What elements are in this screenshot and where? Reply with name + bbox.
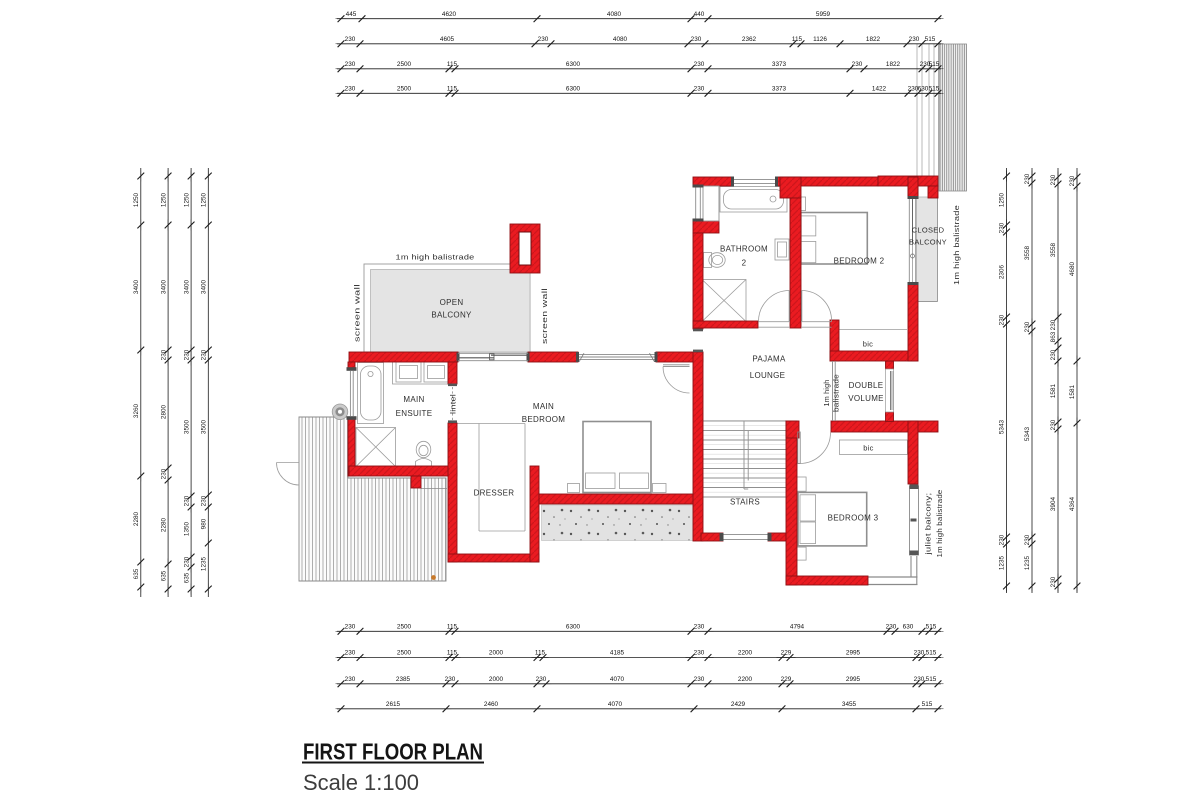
svg-text:230: 230 bbox=[183, 349, 190, 360]
svg-text:DRESSER: DRESSER bbox=[474, 489, 515, 498]
svg-text:DOUBLE: DOUBLE bbox=[849, 381, 884, 390]
svg-text:1m high balistrade: 1m high balistrade bbox=[396, 253, 475, 262]
svg-text:115: 115 bbox=[535, 650, 546, 657]
svg-text:230: 230 bbox=[1024, 321, 1031, 332]
svg-text:juliet balcony;: juliet balcony; bbox=[926, 493, 933, 556]
svg-text:230: 230 bbox=[694, 624, 705, 631]
svg-text:1235: 1235 bbox=[1024, 555, 1031, 570]
svg-text:BEDROOM 2: BEDROOM 2 bbox=[834, 257, 885, 266]
svg-text:2500: 2500 bbox=[397, 650, 412, 657]
svg-text:balistrade: balistrade bbox=[834, 374, 841, 412]
svg-text:230: 230 bbox=[345, 36, 356, 43]
svg-text:3400: 3400 bbox=[201, 279, 208, 294]
svg-text:1235: 1235 bbox=[999, 555, 1006, 570]
svg-text:230: 230 bbox=[183, 556, 190, 567]
svg-text:230: 230 bbox=[201, 495, 208, 506]
svg-text:863: 863 bbox=[1050, 331, 1057, 342]
svg-text:3400: 3400 bbox=[133, 279, 140, 294]
svg-text:2: 2 bbox=[742, 259, 747, 268]
svg-text:ENSUITE: ENSUITE bbox=[396, 409, 433, 418]
svg-text:630: 630 bbox=[903, 624, 914, 631]
svg-text:2460: 2460 bbox=[484, 701, 499, 708]
svg-text:5959: 5959 bbox=[816, 11, 831, 18]
svg-text:230: 230 bbox=[999, 314, 1006, 325]
svg-text:6300: 6300 bbox=[566, 61, 581, 68]
svg-text:230: 230 bbox=[1050, 319, 1057, 330]
svg-text:PAJAMA: PAJAMA bbox=[752, 355, 786, 364]
svg-text:4364: 4364 bbox=[1069, 496, 1076, 511]
svg-text:2429: 2429 bbox=[731, 701, 746, 708]
svg-text:229: 229 bbox=[781, 650, 792, 657]
svg-text:230: 230 bbox=[538, 36, 549, 43]
svg-text:630: 630 bbox=[918, 86, 929, 93]
svg-text:4605: 4605 bbox=[440, 36, 455, 43]
svg-text:3904: 3904 bbox=[1050, 496, 1057, 511]
svg-text:1822: 1822 bbox=[866, 36, 881, 43]
svg-text:LOUNGE: LOUNGE bbox=[750, 371, 786, 380]
svg-text:230: 230 bbox=[160, 468, 167, 479]
svg-text:3260: 3260 bbox=[133, 403, 140, 418]
svg-text:230: 230 bbox=[1050, 349, 1057, 360]
svg-text:1250: 1250 bbox=[183, 192, 190, 207]
svg-text:230: 230 bbox=[1050, 419, 1057, 430]
svg-text:3400: 3400 bbox=[183, 279, 190, 294]
svg-text:2500: 2500 bbox=[397, 624, 412, 631]
svg-text:VOLUME: VOLUME bbox=[848, 394, 884, 403]
svg-text:screen wall: screen wall bbox=[355, 284, 362, 342]
svg-text:230: 230 bbox=[914, 676, 925, 683]
svg-text:3558: 3558 bbox=[1024, 245, 1031, 260]
svg-text:2280: 2280 bbox=[133, 511, 140, 526]
svg-text:230: 230 bbox=[183, 495, 190, 506]
svg-text:230: 230 bbox=[345, 61, 356, 68]
svg-text:Scale 1:100: Scale 1:100 bbox=[303, 770, 419, 795]
svg-text:1422: 1422 bbox=[872, 86, 887, 93]
svg-text:1m high: 1m high bbox=[824, 380, 831, 407]
svg-text:2000: 2000 bbox=[489, 650, 504, 657]
svg-text:230: 230 bbox=[345, 676, 356, 683]
svg-text:230: 230 bbox=[201, 349, 208, 360]
svg-text:4070: 4070 bbox=[608, 701, 623, 708]
svg-text:1126: 1126 bbox=[813, 36, 827, 43]
svg-text:230: 230 bbox=[160, 349, 167, 360]
svg-text:3400: 3400 bbox=[160, 279, 167, 294]
svg-text:515: 515 bbox=[929, 61, 940, 68]
svg-text:3373: 3373 bbox=[772, 61, 787, 68]
svg-text:115: 115 bbox=[447, 61, 458, 68]
svg-text:1250: 1250 bbox=[133, 192, 140, 207]
svg-text:980: 980 bbox=[201, 518, 208, 529]
svg-text:4185: 4185 bbox=[610, 650, 625, 657]
svg-text:4080: 4080 bbox=[613, 36, 628, 43]
svg-text:bic: bic bbox=[863, 340, 874, 349]
svg-text:2200: 2200 bbox=[738, 650, 753, 657]
svg-text:FIRST FLOOR PLAN: FIRST FLOOR PLAN bbox=[303, 739, 483, 765]
svg-text:230: 230 bbox=[1024, 173, 1031, 184]
svg-text:4080: 4080 bbox=[607, 11, 622, 18]
svg-text:2280: 2280 bbox=[160, 517, 167, 532]
svg-text:115: 115 bbox=[447, 624, 458, 631]
svg-text:230: 230 bbox=[1050, 576, 1057, 587]
svg-text:230: 230 bbox=[999, 534, 1006, 545]
svg-text:515: 515 bbox=[926, 624, 937, 631]
svg-text:635: 635 bbox=[183, 572, 190, 583]
svg-text:2800: 2800 bbox=[160, 404, 167, 419]
svg-text:3500: 3500 bbox=[201, 419, 208, 434]
svg-text:2995: 2995 bbox=[846, 650, 861, 657]
svg-text:1250: 1250 bbox=[201, 192, 208, 207]
svg-text:1m high balistrade: 1m high balistrade bbox=[954, 205, 961, 285]
svg-text:1822: 1822 bbox=[886, 61, 901, 68]
svg-text:230: 230 bbox=[694, 650, 705, 657]
svg-text:2000: 2000 bbox=[489, 676, 504, 683]
svg-text:115: 115 bbox=[447, 650, 458, 657]
svg-text:1235: 1235 bbox=[201, 556, 208, 571]
svg-text:screen wall: screen wall bbox=[542, 288, 549, 344]
svg-text:2200: 2200 bbox=[738, 676, 753, 683]
svg-text:230: 230 bbox=[999, 222, 1006, 233]
svg-text:MAIN: MAIN bbox=[533, 402, 554, 411]
svg-text:CLOSED: CLOSED bbox=[912, 226, 945, 235]
svg-text:230: 230 bbox=[914, 650, 925, 657]
svg-text:5343: 5343 bbox=[1024, 426, 1031, 441]
svg-text:bic: bic bbox=[863, 444, 874, 453]
svg-text:230: 230 bbox=[345, 650, 356, 657]
svg-text:230: 230 bbox=[345, 86, 356, 93]
svg-text:515: 515 bbox=[926, 676, 937, 683]
svg-text:3558: 3558 bbox=[1050, 242, 1057, 257]
svg-text:2500: 2500 bbox=[397, 61, 412, 68]
svg-text:4070: 4070 bbox=[610, 676, 625, 683]
svg-text:230: 230 bbox=[909, 36, 920, 43]
svg-text:230: 230 bbox=[1069, 175, 1076, 186]
svg-text:BALCONY: BALCONY bbox=[909, 238, 947, 247]
svg-text:1581: 1581 bbox=[1069, 384, 1076, 399]
svg-text:1581: 1581 bbox=[1050, 383, 1057, 398]
svg-text:115: 115 bbox=[792, 36, 803, 43]
svg-text:lintel: lintel bbox=[451, 394, 458, 414]
svg-text:3455: 3455 bbox=[842, 701, 857, 708]
svg-text:115: 115 bbox=[447, 86, 458, 93]
svg-text:230: 230 bbox=[694, 676, 705, 683]
svg-text:229: 229 bbox=[781, 676, 792, 683]
svg-text:6300: 6300 bbox=[566, 86, 581, 93]
svg-text:1m high balistrade: 1m high balistrade bbox=[937, 490, 944, 558]
svg-text:2500: 2500 bbox=[397, 86, 412, 93]
svg-text:BALCONY: BALCONY bbox=[431, 311, 472, 320]
svg-text:5343: 5343 bbox=[999, 419, 1006, 434]
svg-text:2995: 2995 bbox=[846, 676, 861, 683]
svg-text:230: 230 bbox=[345, 624, 356, 631]
svg-text:2385: 2385 bbox=[396, 676, 411, 683]
svg-text:STAIRS: STAIRS bbox=[730, 498, 760, 507]
svg-text:635: 635 bbox=[160, 570, 167, 581]
svg-text:515: 515 bbox=[926, 650, 937, 657]
svg-text:4794: 4794 bbox=[790, 624, 805, 631]
svg-text:515: 515 bbox=[925, 36, 936, 43]
svg-text:230: 230 bbox=[1024, 534, 1031, 545]
svg-text:BEDROOM: BEDROOM bbox=[522, 415, 565, 424]
svg-text:BATHROOM: BATHROOM bbox=[720, 245, 768, 254]
svg-text:BEDROOM 3: BEDROOM 3 bbox=[828, 514, 879, 523]
svg-text:230: 230 bbox=[691, 36, 702, 43]
svg-text:230: 230 bbox=[852, 61, 863, 68]
svg-text:230: 230 bbox=[536, 676, 547, 683]
svg-text:3373: 3373 bbox=[772, 86, 787, 93]
svg-text:2615: 2615 bbox=[386, 701, 401, 708]
svg-text:3500: 3500 bbox=[183, 419, 190, 434]
svg-text:1250: 1250 bbox=[160, 192, 167, 207]
svg-text:515: 515 bbox=[922, 701, 933, 708]
svg-text:635: 635 bbox=[133, 568, 140, 579]
svg-text:4620: 4620 bbox=[442, 11, 457, 18]
svg-text:230: 230 bbox=[694, 61, 705, 68]
svg-text:MAIN: MAIN bbox=[403, 395, 424, 404]
svg-text:1250: 1250 bbox=[999, 192, 1006, 207]
svg-text:515: 515 bbox=[929, 86, 940, 93]
svg-text:2362: 2362 bbox=[742, 36, 757, 43]
svg-text:440: 440 bbox=[694, 11, 705, 18]
svg-text:2306: 2306 bbox=[999, 264, 1006, 279]
svg-text:4680: 4680 bbox=[1069, 261, 1076, 276]
svg-text:230: 230 bbox=[1050, 174, 1057, 185]
svg-text:230: 230 bbox=[445, 676, 456, 683]
svg-text:230: 230 bbox=[886, 624, 897, 631]
svg-text:6300: 6300 bbox=[566, 624, 581, 631]
svg-text:230: 230 bbox=[694, 86, 705, 93]
svg-text:445: 445 bbox=[346, 11, 357, 18]
svg-text:1350: 1350 bbox=[183, 521, 190, 536]
svg-text:OPEN: OPEN bbox=[440, 298, 464, 307]
